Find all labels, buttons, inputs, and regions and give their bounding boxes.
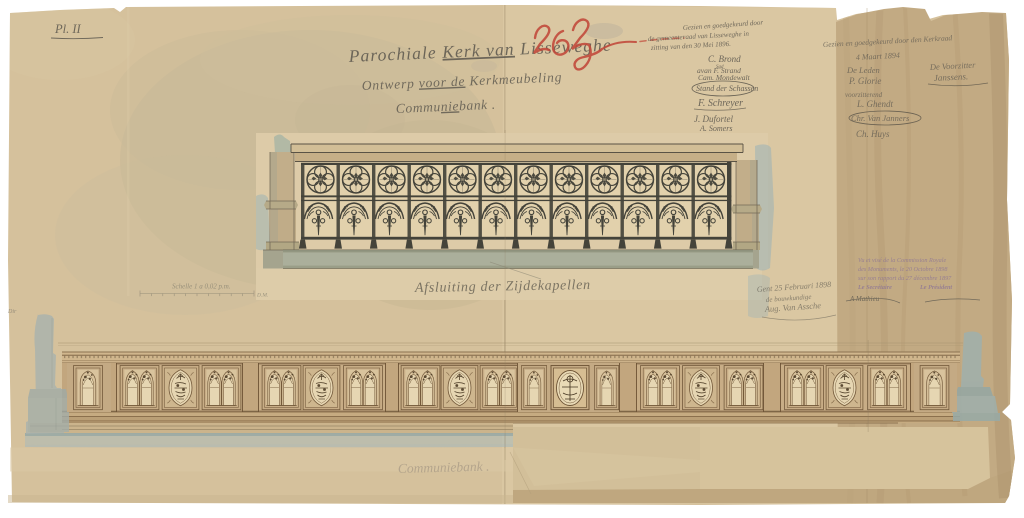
svg-text:Le Secrétaire: Le Secrétaire bbox=[857, 284, 892, 291]
svg-text:Pl. II: Pl. II bbox=[54, 22, 82, 36]
svg-text:F. Schreyer: F. Schreyer bbox=[697, 98, 743, 109]
svg-text:Schelle 1 a 0,02 p.m.: Schelle 1 a 0,02 p.m. bbox=[172, 283, 231, 291]
svg-text:Stand der Schassen: Stand der Schassen bbox=[696, 84, 758, 93]
svg-text:Ch. Huys: Ch. Huys bbox=[856, 129, 890, 139]
svg-text:De Leden: De Leden bbox=[846, 65, 880, 75]
svg-text:Dir: Dir bbox=[7, 309, 17, 315]
svg-text:P. Glorie: P. Glorie bbox=[848, 76, 881, 86]
svg-text:Chr. Van Janners: Chr. Van Janners bbox=[851, 113, 910, 123]
svg-text:J. Dufortel: J. Dufortel bbox=[694, 114, 733, 124]
svg-text:voorzitterend: voorzitterend bbox=[845, 91, 883, 99]
svg-text:D.M.: D.M. bbox=[256, 293, 268, 299]
svg-text:Le Président: Le Président bbox=[919, 284, 952, 291]
svg-text:sur son rapport du 27 décembre: sur son rapport du 27 décembre 1897 bbox=[858, 275, 952, 282]
svg-text:Communiebank .: Communiebank . bbox=[398, 459, 490, 476]
svg-text:Afsluiting der Zijdekapellen: Afsluiting der Zijdekapellen bbox=[414, 278, 591, 296]
svg-text:A Mathieu: A Mathieu bbox=[849, 295, 880, 303]
svg-text:Vu et visé de la Commission Ro: Vu et visé de la Commission Royale bbox=[858, 257, 946, 264]
svg-text:Janssens.: Janssens. bbox=[934, 71, 969, 83]
svg-text:C. Brond: C. Brond bbox=[708, 54, 741, 64]
svg-text:L. Ghendt: L. Ghendt bbox=[856, 99, 893, 109]
svg-text:des Monuments, le 20 Octobre 1: des Monuments, le 20 Octobre 1898 bbox=[858, 266, 948, 273]
svg-text:A. Somers: A. Somers bbox=[699, 124, 732, 133]
